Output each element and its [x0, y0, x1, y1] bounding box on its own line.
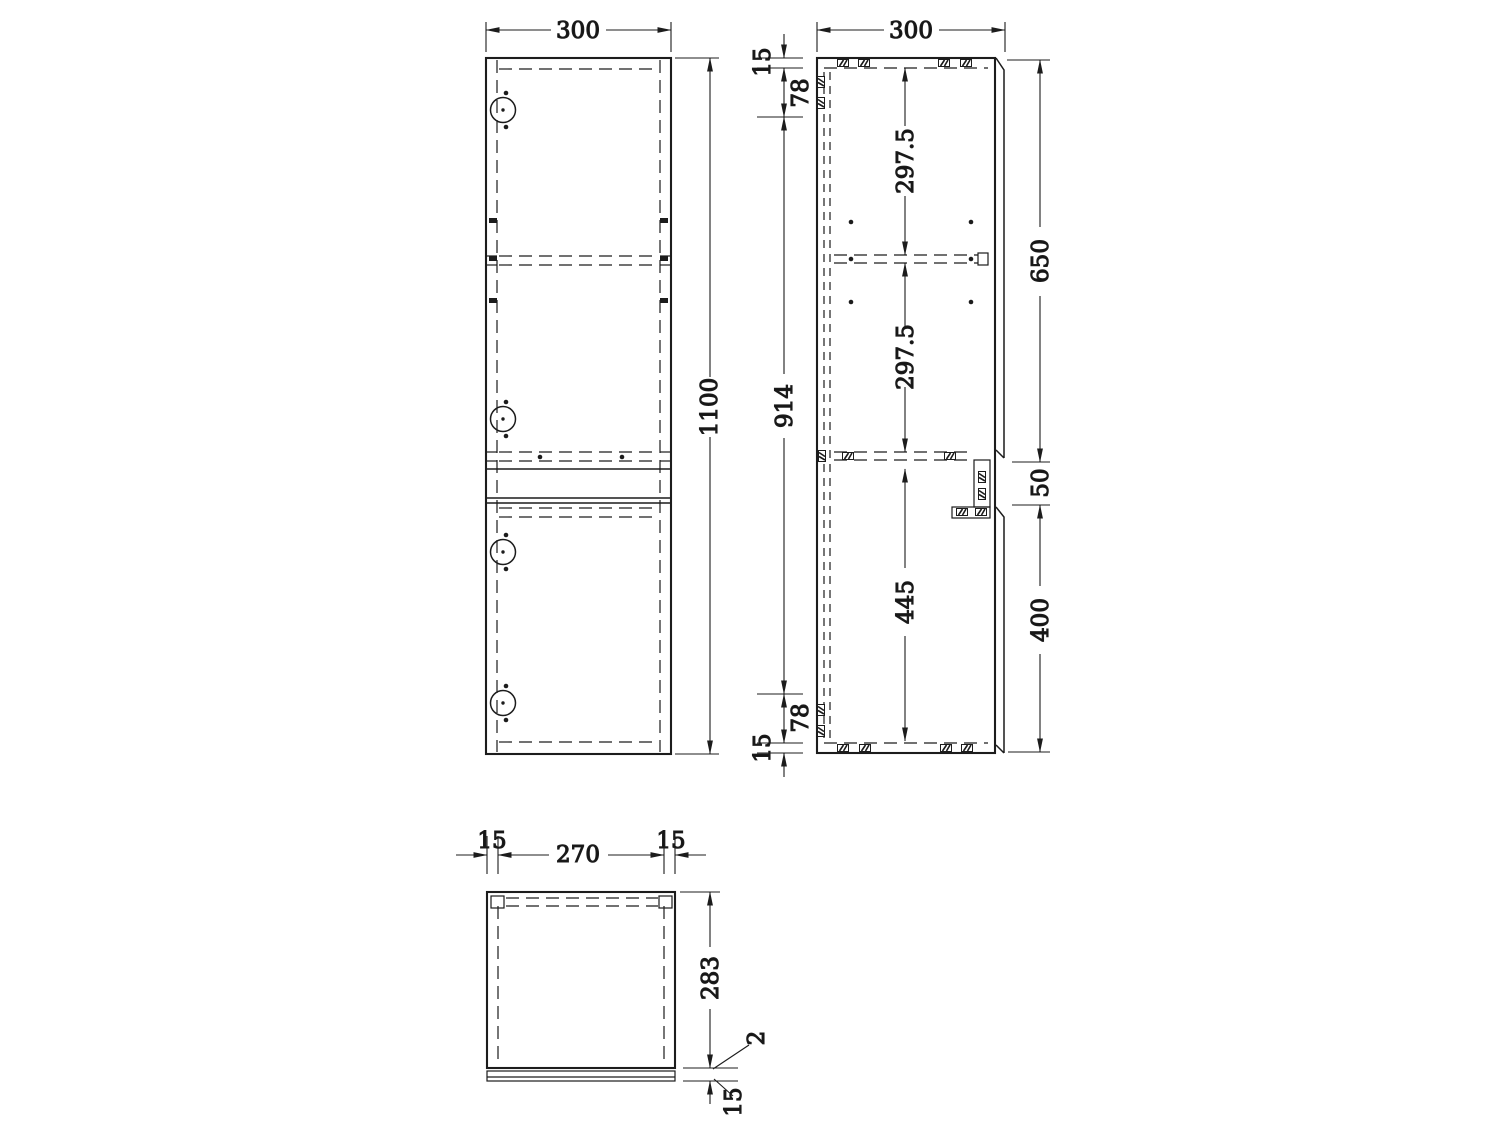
front-center-rail	[486, 469, 671, 503]
front-upper-shelf	[486, 256, 671, 265]
side-width-label: 300	[889, 18, 933, 44]
top-body-outline	[487, 892, 675, 1068]
top-interior-width-label: 270	[556, 842, 600, 868]
top-left-panel-label: 15	[477, 828, 506, 854]
side-dim-right-chain: 650 50 400	[1007, 60, 1054, 752]
side-lower-interior-label: 445	[893, 580, 919, 624]
side-center-rail-bracket	[952, 460, 990, 518]
side-view: 300 15 78 914 78 15 297.5	[750, 18, 1054, 777]
front-height-label: 1100	[697, 378, 723, 437]
side-middle-shelf-spacing-label: 297.5	[893, 324, 919, 390]
front-lower-door-hidden-lines	[499, 508, 658, 742]
top-dim-width-chain: 15 270 15	[456, 828, 706, 874]
hinge-top-lower-door	[491, 533, 516, 572]
front-shelf-pin-holes	[489, 218, 668, 303]
top-depth-label: 283	[698, 956, 724, 1000]
side-top-thickness-label: 15	[750, 47, 776, 76]
side-center-gap-label: 50	[1028, 468, 1054, 497]
side-dim-left-chain: 15 78 914 78 15	[750, 34, 814, 777]
cabinet-technical-drawing: 300 1100	[0, 0, 1500, 1125]
side-upper-shelf	[834, 220, 988, 305]
top-right-panel-label: 15	[656, 828, 685, 854]
side-bottom-thickness-label: 15	[750, 733, 776, 762]
hinge-top-upper-door	[491, 91, 516, 130]
drawing-canvas: 300 1100	[0, 0, 1500, 1125]
hinge-bottom-lower-door	[491, 684, 516, 723]
side-upper-shelf-spacing-label: 297.5	[893, 128, 919, 194]
front-dim-height: 1100	[675, 58, 723, 754]
hinge-bottom-upper-door	[491, 400, 516, 439]
side-lower-door-profile	[996, 507, 1004, 753]
front-view: 300 1100	[486, 18, 723, 754]
side-fixed-shelf	[819, 451, 973, 462]
front-width-label: 300	[556, 18, 600, 44]
side-upper-door-label: 650	[1028, 239, 1054, 283]
side-dim-interior: 297.5 297.5 445	[893, 68, 919, 741]
side-bottom-offset-label: 78	[788, 703, 814, 732]
side-upper-door-profile	[996, 58, 1004, 458]
front-cabinet-outline	[486, 58, 671, 754]
side-top-offset-label: 78	[788, 78, 814, 107]
top-door-gap-label: 2	[744, 1031, 770, 1046]
top-back-rail	[491, 896, 672, 908]
side-dim-width: 300	[817, 18, 1005, 52]
top-door-panel	[487, 1071, 675, 1081]
side-lower-door-label: 400	[1028, 598, 1054, 642]
front-fixed-shelf	[486, 452, 671, 461]
top-door-thickness-label: 15	[721, 1087, 747, 1116]
side-back-interior-label: 914	[772, 384, 798, 428]
front-dim-width: 300	[486, 18, 671, 52]
top-dim-depth-chain: 283 2 15	[680, 892, 770, 1117]
top-view: 15 270 15 283 2 15	[456, 828, 770, 1117]
